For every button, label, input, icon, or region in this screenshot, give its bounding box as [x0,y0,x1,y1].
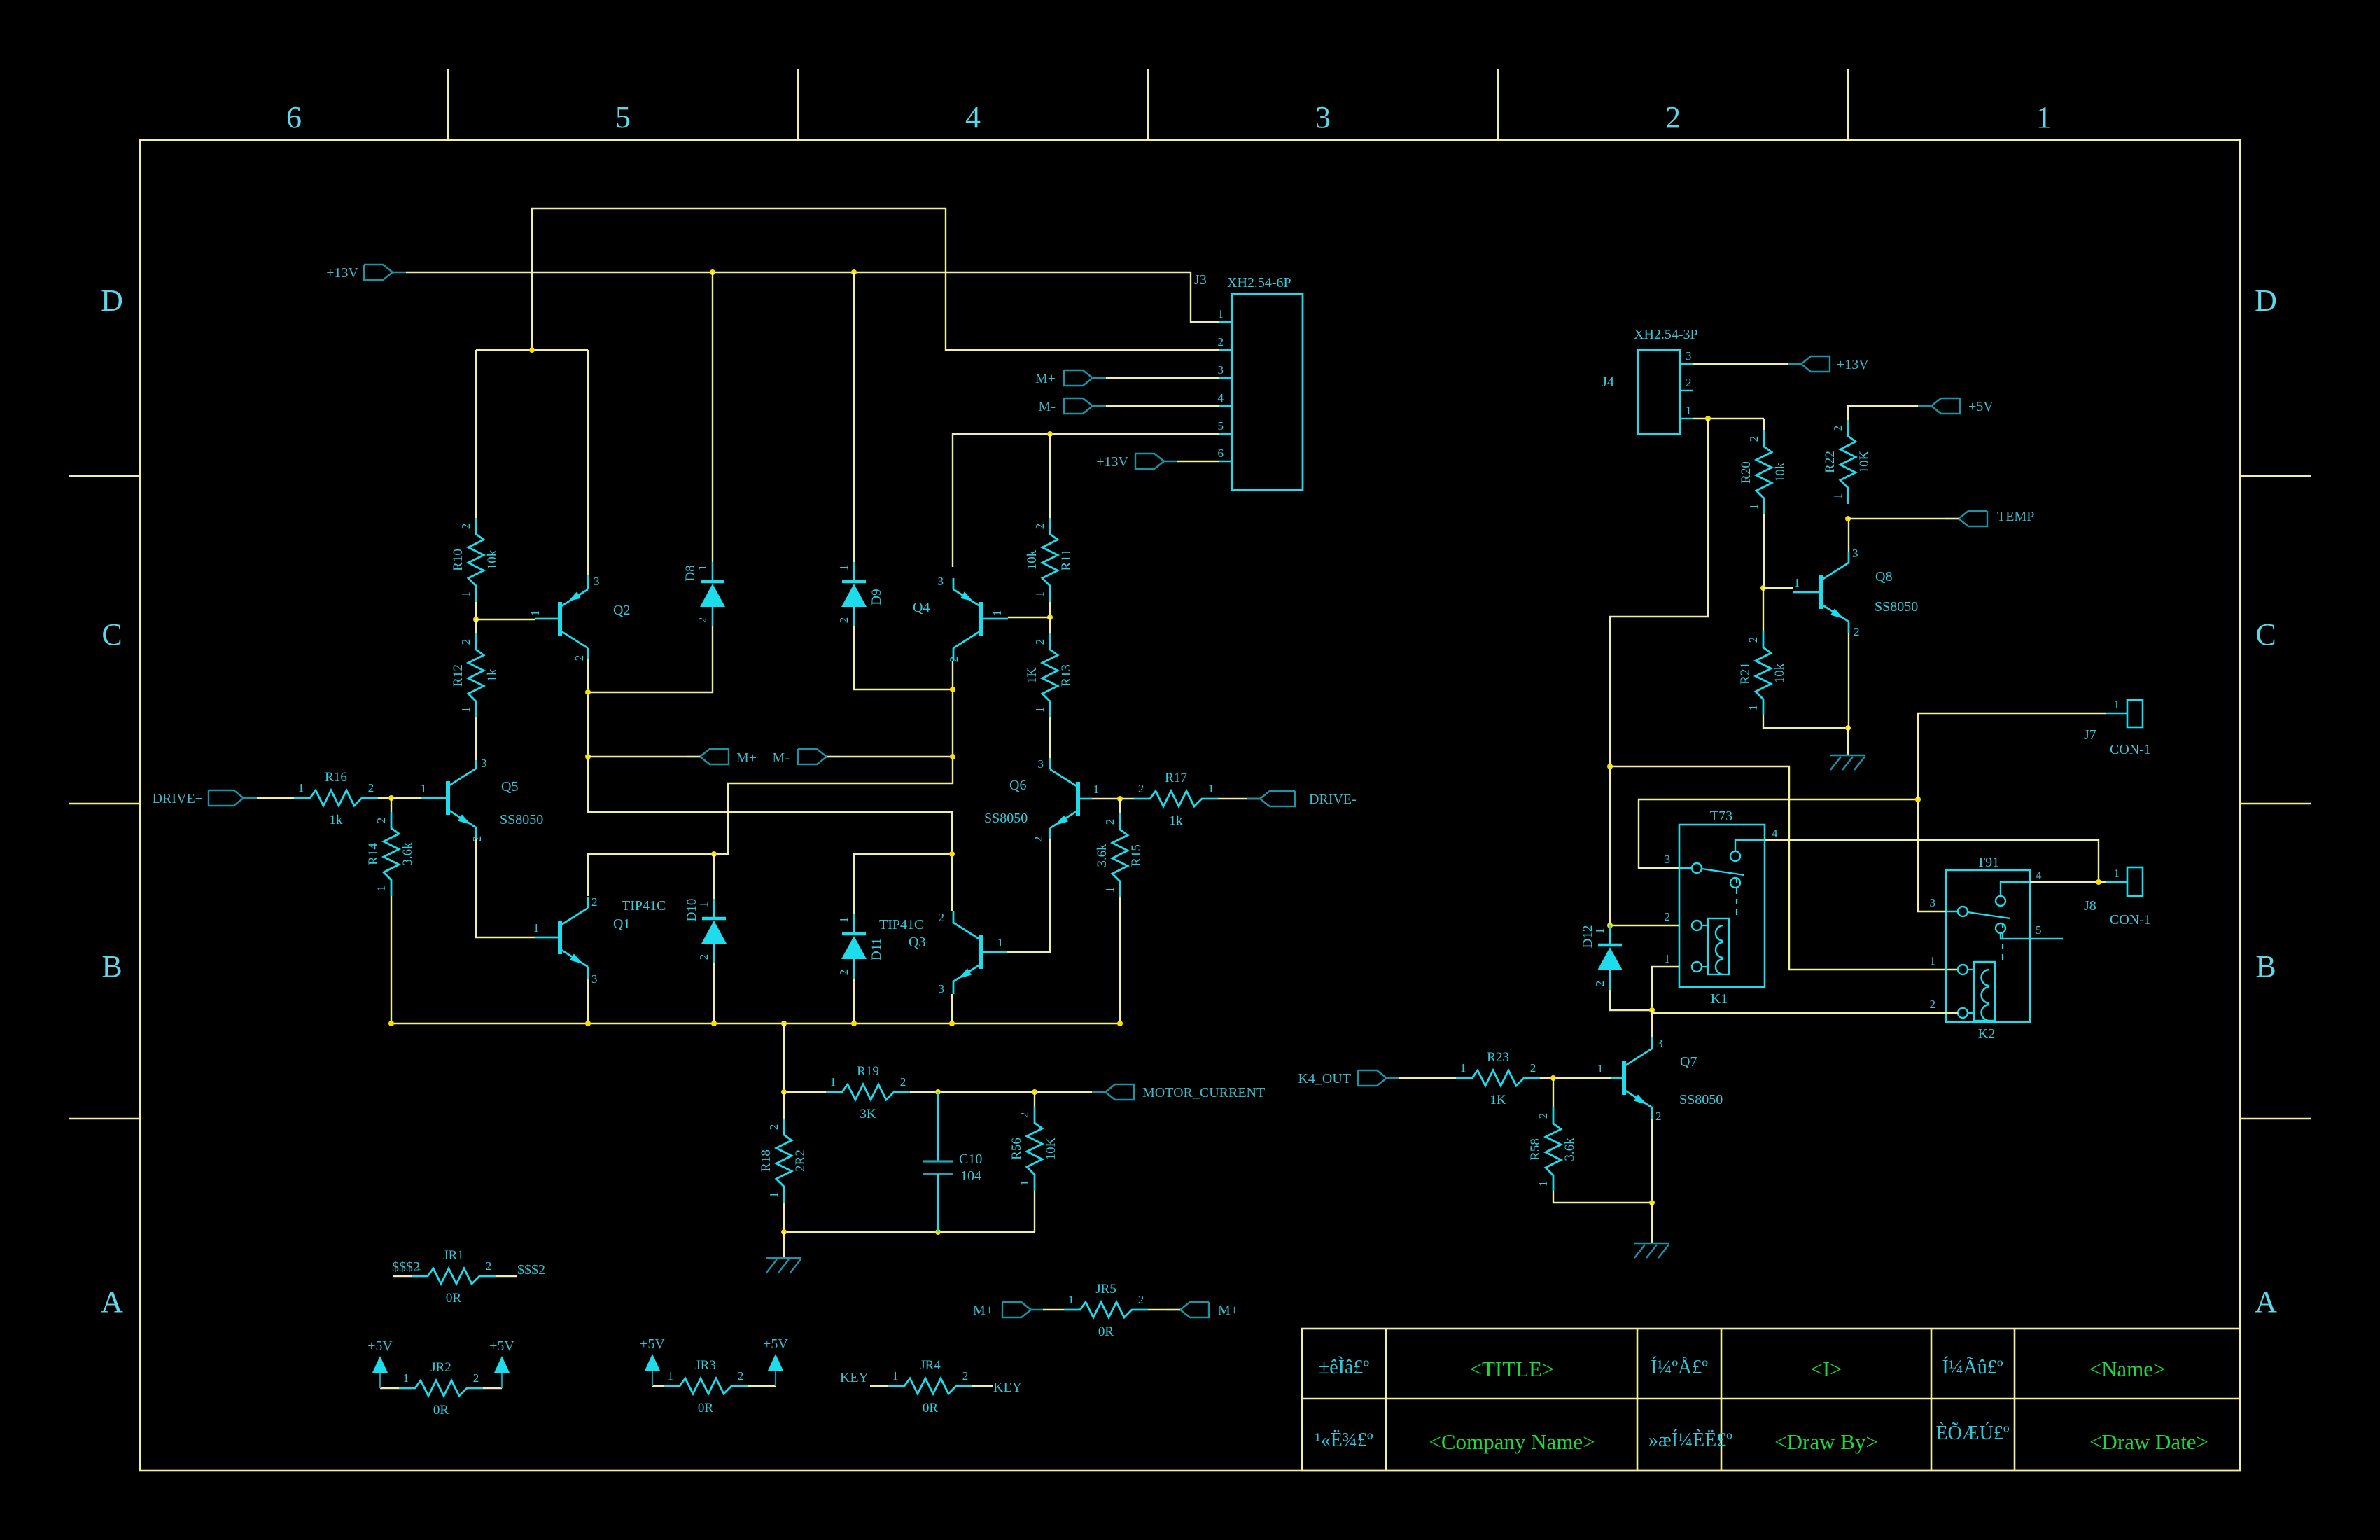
svg-text:R18: R18 [759,1149,773,1172]
svg-text:D: D [101,283,123,318]
svg-text:5: 5 [615,100,631,134]
svg-text:J3: J3 [1194,272,1207,288]
svg-text:+5V: +5V [367,1338,393,1354]
svg-text:+13V: +13V [326,265,358,281]
svg-text:2: 2 [1665,910,1671,923]
svg-text:1: 1 [1747,504,1760,510]
svg-text:<TITLE>: <TITLE> [1469,1357,1554,1381]
svg-text:1: 1 [1665,952,1671,965]
svg-text:10k: 10k [485,549,500,570]
svg-text:2: 2 [1854,625,1860,638]
svg-text:1: 1 [459,707,472,713]
svg-text:2: 2 [939,911,945,924]
svg-text:3: 3 [1038,757,1044,771]
svg-text:3.6k: 3.6k [1562,1137,1577,1161]
svg-text:2: 2 [696,617,709,624]
svg-text:TIP41C: TIP41C [879,917,923,932]
svg-text:2: 2 [947,657,960,663]
svg-text:5: 5 [1218,419,1224,433]
svg-text:2: 2 [573,655,586,661]
svg-text:2: 2 [1747,436,1760,442]
svg-text:+5V: +5V [640,1336,665,1352]
svg-text:1: 1 [403,1371,409,1385]
svg-text:J8: J8 [2084,898,2096,913]
svg-text:10K: 10K [1044,1137,1058,1160]
svg-text:3: 3 [1686,349,1692,363]
svg-text:<I>: <I> [1810,1357,1842,1381]
svg-text:2: 2 [1033,524,1046,530]
svg-text:3.6k: 3.6k [400,842,415,866]
svg-text:R16: R16 [325,770,347,785]
svg-text:SS8050: SS8050 [1875,599,1918,615]
svg-text:D: D [2255,283,2277,318]
svg-text:+5V: +5V [489,1338,514,1354]
svg-text:SS8050: SS8050 [1679,1092,1723,1107]
svg-text:1: 1 [990,610,1004,617]
svg-text:Q3: Q3 [909,934,925,950]
svg-text:1: 1 [1460,1061,1466,1074]
svg-text:Í¼Ãû£º: Í¼Ãû£º [1942,1357,2003,1378]
svg-text:1: 1 [697,902,710,908]
svg-text:1: 1 [1536,1181,1550,1187]
svg-text:»æÍ¼ÈË£º: »æÍ¼ÈË£º [1648,1429,1732,1451]
svg-text:A: A [101,1284,123,1319]
svg-text:R13: R13 [1059,664,1074,687]
svg-text:Q4: Q4 [913,600,930,615]
svg-text:TIP41C: TIP41C [622,898,666,913]
svg-text:2: 2 [1218,335,1224,349]
svg-text:R17: R17 [1165,771,1187,785]
svg-text:1: 1 [1794,576,1800,589]
svg-text:KEY: KEY [840,1370,869,1385]
svg-text:3: 3 [591,972,598,986]
svg-text:+13V: +13V [1837,357,1869,372]
svg-text:SS8050: SS8050 [500,812,543,827]
svg-text:1: 1 [374,885,388,892]
svg-text:TEMP: TEMP [1997,509,2034,524]
svg-text:1: 1 [837,917,850,923]
svg-text:3: 3 [481,757,487,770]
svg-text:XH2.54-3P: XH2.54-3P [1634,327,1698,342]
svg-text:1: 1 [830,1075,836,1088]
svg-text:M+: M+ [1035,371,1056,386]
svg-text:¹«Ë¾£º: ¹«Ë¾£º [1315,1429,1373,1451]
svg-text:2: 2 [473,1371,479,1385]
svg-text:1: 1 [696,565,709,571]
svg-text:4: 4 [965,100,981,134]
svg-text:JR4: JR4 [920,1358,941,1373]
svg-text:Q7: Q7 [1680,1054,1697,1070]
svg-text:2: 2 [459,524,472,530]
svg-text:3: 3 [938,575,944,588]
svg-text:1: 1 [892,1369,899,1382]
svg-text:2: 2 [1536,1113,1550,1119]
svg-text:R56: R56 [1009,1137,1024,1160]
svg-text:2: 2 [459,639,472,645]
svg-text:1: 1 [421,782,427,795]
svg-text:J7: J7 [2084,727,2096,743]
svg-text:2: 2 [697,954,710,960]
svg-text:T91: T91 [1977,855,1999,870]
svg-text:1: 1 [298,781,304,794]
svg-text:10K: 10K [1857,450,1872,473]
svg-text:K2: K2 [1978,1026,1995,1042]
svg-text:J4: J4 [1602,374,1614,390]
svg-text:1: 1 [1093,783,1100,796]
svg-text:R20: R20 [1739,461,1753,484]
svg-text:$$$2: $$$2 [392,1259,420,1275]
svg-text:1: 1 [1746,705,1760,711]
svg-text:M-: M- [773,750,790,766]
svg-text:1: 1 [459,591,472,598]
svg-text:1k: 1k [330,813,344,827]
svg-text:<Draw Date>: <Draw Date> [2089,1429,2208,1454]
svg-text:2: 2 [368,781,374,794]
svg-text:2: 2 [1103,819,1116,825]
svg-text:D11: D11 [869,938,884,960]
svg-text:DRIVE+: DRIVE+ [153,791,203,806]
svg-text:1: 1 [997,936,1004,949]
svg-text:3: 3 [1218,363,1224,377]
svg-text:T73: T73 [1710,808,1732,824]
svg-text:2: 2 [1138,782,1144,795]
svg-text:3: 3 [1665,853,1671,866]
svg-text:Q5: Q5 [501,779,518,794]
svg-text:3K: 3K [860,1107,876,1121]
svg-text:R58: R58 [1528,1138,1543,1161]
svg-text:+5V: +5V [763,1336,788,1352]
svg-text:JR3: JR3 [695,1358,716,1373]
svg-text:Q6: Q6 [1009,778,1026,793]
svg-text:3: 3 [1852,547,1858,560]
svg-text:0R: 0R [433,1403,449,1417]
svg-text:JR2: JR2 [430,1360,451,1375]
svg-text:SS8050: SS8050 [984,811,1028,826]
svg-text:0R: 0R [446,1291,462,1305]
svg-text:DRIVE-: DRIVE- [1309,792,1357,807]
svg-text:M+: M+ [1218,1303,1238,1318]
svg-text:$$$2: $$$2 [517,1262,545,1277]
svg-text:1: 1 [2114,867,2120,880]
svg-text:1: 1 [1208,782,1214,795]
svg-text:±êÌâ£º: ±êÌâ£º [1319,1357,1370,1378]
svg-text:JR1: JR1 [443,1248,464,1263]
svg-text:1: 1 [1103,887,1116,893]
svg-text:2: 2 [1018,1112,1031,1119]
svg-text:XH2.54-6P: XH2.54-6P [1227,275,1291,290]
svg-text:1: 1 [1930,954,1936,967]
svg-text:2: 2 [738,1369,744,1382]
svg-text:ÈÕÆÚ£º: ÈÕÆÚ£º [1935,1422,2009,1444]
svg-text:2: 2 [486,1259,492,1273]
svg-text:2: 2 [1746,637,1760,643]
svg-text:2: 2 [1530,1061,1536,1074]
svg-text:1k: 1k [485,668,500,682]
svg-text:1: 1 [668,1369,674,1382]
svg-text:10k: 10k [1773,462,1788,482]
svg-text:+5V: +5V [1968,399,1994,414]
svg-text:4: 4 [2036,869,2042,882]
svg-text:1: 1 [1593,928,1606,934]
svg-text:1: 1 [1218,307,1224,321]
svg-text:4: 4 [1772,827,1778,840]
svg-text:<Draw By>: <Draw By> [1774,1429,1878,1454]
svg-text:JR5: JR5 [1095,1282,1116,1296]
svg-text:2: 2 [1032,836,1045,843]
svg-text:6: 6 [1218,447,1224,460]
svg-text:2: 2 [470,836,484,842]
svg-text:2: 2 [1593,981,1606,987]
svg-text:2: 2 [837,617,850,624]
svg-text:2R2: 2R2 [793,1149,808,1172]
svg-text:5: 5 [2036,923,2042,937]
svg-text:CON-1: CON-1 [2110,912,2151,927]
svg-text:3.6k: 3.6k [1095,843,1109,867]
svg-text:2: 2 [1686,376,1692,389]
svg-text:B: B [2255,949,2276,983]
svg-text:B: B [101,949,122,983]
svg-text:2: 2 [1655,1109,1662,1123]
svg-text:M-: M- [1039,399,1056,414]
svg-text:10k: 10k [1772,663,1787,683]
svg-text:2: 2 [1138,1293,1144,1306]
svg-text:K4_OUT: K4_OUT [1298,1071,1351,1086]
svg-text:1K: 1K [1025,667,1039,684]
svg-text:R22: R22 [1823,451,1837,473]
svg-text:3: 3 [594,575,600,588]
svg-text:1: 1 [1831,493,1844,500]
svg-text:3: 3 [1315,100,1331,134]
svg-text:2: 2 [1831,426,1844,432]
svg-text:Q8: Q8 [1875,569,1892,584]
svg-text:3: 3 [1657,1037,1663,1050]
svg-text:M+: M+ [736,750,757,766]
svg-text:R12: R12 [451,664,465,687]
svg-text:<Name>: <Name> [2089,1357,2166,1381]
svg-text:R10: R10 [451,549,465,571]
svg-text:C10: C10 [959,1151,982,1167]
svg-text:2: 2 [837,969,850,976]
svg-text:104: 104 [960,1168,981,1184]
svg-text:2: 2 [374,818,388,824]
svg-text:1: 1 [837,565,850,571]
svg-text:2: 2 [1930,997,1936,1011]
svg-text:1: 1 [2036,100,2052,134]
svg-text:2: 2 [900,1075,906,1088]
svg-text:MOTOR_CURRENT: MOTOR_CURRENT [1142,1085,1265,1100]
svg-text:Q1: Q1 [613,916,630,932]
svg-text:R19: R19 [857,1064,879,1079]
svg-text:1: 1 [1686,404,1692,417]
svg-text:3: 3 [1930,896,1936,909]
svg-text:1: 1 [528,610,542,617]
svg-text:0R: 0R [698,1401,714,1415]
svg-text:C: C [2255,617,2276,652]
svg-text:1: 1 [533,921,540,934]
svg-text:R15: R15 [1129,844,1144,867]
svg-text:4: 4 [1218,391,1224,405]
svg-text:+13V: +13V [1096,454,1128,470]
svg-text:1k: 1k [1170,813,1184,828]
svg-text:R14: R14 [366,843,381,865]
svg-text:A: A [2255,1284,2277,1319]
svg-text:K1: K1 [1711,991,1728,1007]
svg-text:C: C [101,617,122,652]
svg-text:1: 1 [1068,1293,1074,1306]
svg-text:R11: R11 [1059,549,1074,571]
svg-text:2: 2 [767,1124,780,1130]
svg-text:2: 2 [1665,100,1681,134]
svg-text:R21: R21 [1738,662,1753,685]
svg-text:1: 1 [2114,698,2120,711]
svg-text:1: 1 [767,1192,780,1198]
svg-text:Í¼ºÅ£º: Í¼ºÅ£º [1651,1357,1708,1378]
svg-text:3: 3 [939,982,945,995]
svg-text:Q2: Q2 [613,603,630,618]
svg-text:0R: 0R [1098,1324,1114,1339]
svg-text:R23: R23 [1487,1050,1509,1065]
svg-text:1: 1 [1597,1062,1604,1075]
svg-text:D9: D9 [869,589,884,605]
svg-text:1: 1 [1033,707,1046,713]
svg-text:CON-1: CON-1 [2110,742,2151,757]
svg-text:1: 1 [1018,1180,1031,1186]
svg-text:0R: 0R [923,1401,939,1415]
svg-text:KEY: KEY [993,1380,1022,1395]
svg-text:2: 2 [1033,639,1046,645]
svg-text:<Company Name>: <Company Name> [1429,1429,1595,1454]
svg-text:1: 1 [1033,591,1046,598]
svg-text:M+: M+ [973,1303,993,1318]
svg-text:6: 6 [286,100,302,134]
svg-text:2: 2 [962,1369,969,1382]
svg-text:10k: 10k [1025,549,1039,570]
svg-text:1K: 1K [1490,1093,1506,1107]
svg-text:2: 2 [591,895,598,909]
